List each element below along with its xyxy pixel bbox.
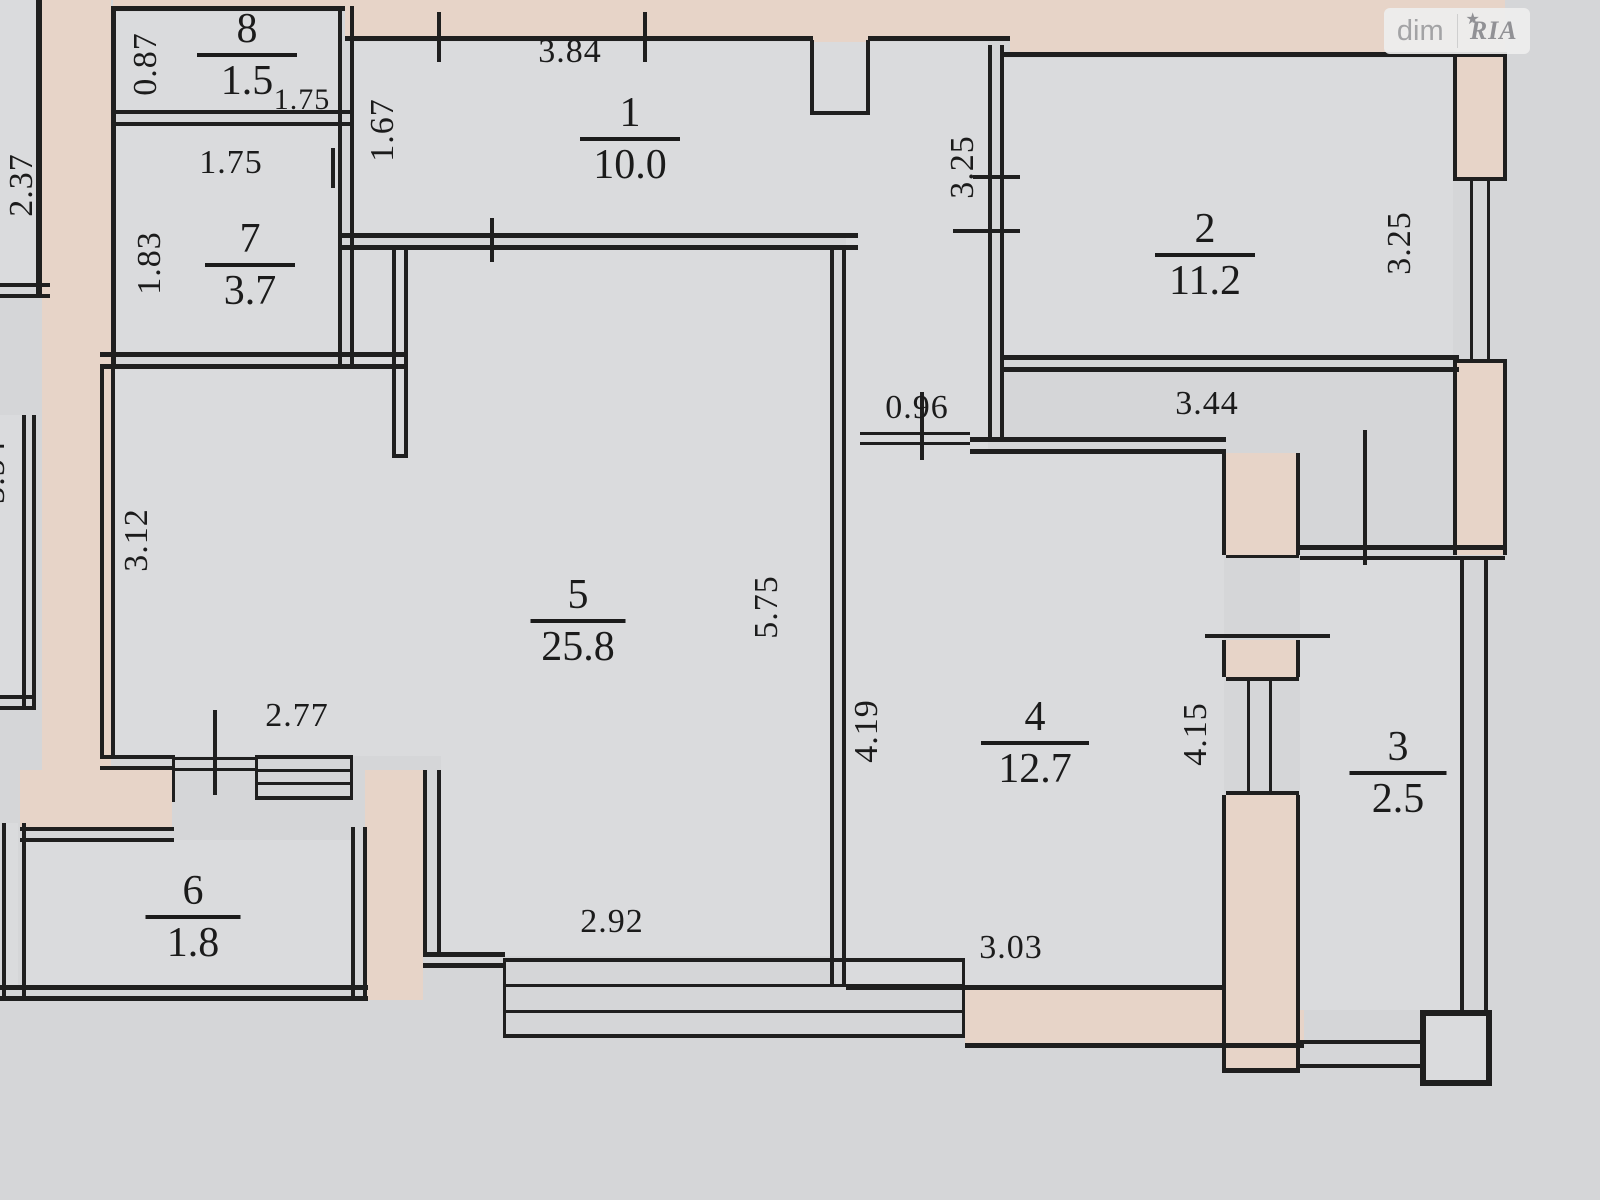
wall-line	[338, 245, 858, 250]
wall-line	[363, 827, 367, 1000]
wall-fill	[1226, 453, 1299, 555]
wall-line	[113, 122, 354, 126]
dimension-label: 4.19	[848, 699, 886, 763]
wall-line	[423, 963, 505, 968]
room-2-area: 11.2	[1155, 259, 1255, 303]
room-5-floor	[354, 249, 830, 368]
wall-line	[392, 454, 408, 458]
room-2-floor	[1004, 58, 1453, 355]
window-line	[1453, 359, 1507, 363]
wall-line	[111, 6, 116, 366]
dimension-label: 1.67	[364, 98, 402, 162]
wall-line	[22, 823, 26, 1000]
room-6-area: 1.8	[146, 921, 241, 965]
neighbor-unit-floor	[6, 823, 18, 987]
wall-line	[32, 415, 36, 708]
dimension-label: 3.44	[1175, 385, 1239, 423]
wall-line	[100, 364, 104, 759]
balcony-railing-line	[1300, 1040, 1422, 1044]
room-8-number: 8	[197, 8, 297, 50]
room-6-label: 6 1.8	[146, 870, 241, 965]
balcony-door-line	[172, 755, 175, 802]
floor-plan: 1 10.0 2 11.2 3 2.5 4 12.7 5 25.8 6 1.8 …	[0, 0, 1600, 1200]
room-5-label: 5 25.8	[531, 574, 626, 669]
dimension-label: 0.87	[127, 32, 165, 96]
wall-line	[100, 364, 408, 369]
wall-fill	[345, 0, 1010, 40]
door-threshold-line	[860, 432, 970, 435]
room-5-area: 25.8	[531, 625, 626, 669]
wall-line	[965, 1043, 1304, 1048]
room-3-area: 2.5	[1350, 777, 1447, 821]
dimension-label: 3.12	[118, 508, 156, 572]
dimension-label: 3.84	[538, 33, 602, 71]
wall-line	[423, 952, 505, 957]
room-1-area: 10.0	[580, 143, 680, 187]
wall-line	[1300, 545, 1505, 550]
room-1-label: 1 10.0	[580, 92, 680, 187]
dimension-tick	[213, 710, 217, 795]
wall-fill	[20, 770, 172, 827]
wall-fill	[1226, 640, 1299, 677]
watermark-dim: dim	[1384, 15, 1457, 48]
wall-line	[1000, 45, 1004, 439]
dimension-tick	[331, 148, 335, 188]
room-4-label: 4 12.7	[981, 696, 1089, 791]
window-line	[503, 1034, 965, 1038]
window-line	[350, 755, 353, 800]
wall-line	[36, 0, 42, 298]
watermark-ria: ★ RIA	[1458, 16, 1531, 46]
window-line	[1226, 791, 1299, 795]
room-6-underline	[146, 915, 241, 919]
room-2-number: 2	[1155, 208, 1255, 250]
dimension-label: 3.54	[0, 440, 13, 504]
dimension-tick	[953, 229, 1020, 233]
wall-line	[100, 352, 408, 357]
wall-line	[1222, 640, 1226, 677]
dimension-label: 5.75	[748, 575, 786, 639]
wall-line	[437, 770, 441, 956]
window-line	[1487, 180, 1490, 360]
wall-line	[1296, 795, 1300, 1068]
watermark-dim-text: dim	[1397, 15, 1444, 47]
room-2-underline	[1155, 253, 1255, 257]
wall-line	[392, 249, 396, 458]
window-line	[255, 755, 353, 759]
room-4-underline	[981, 741, 1089, 745]
wall-line	[970, 449, 1226, 454]
window-line	[255, 755, 258, 800]
room-1-number: 1	[580, 92, 680, 134]
dimension-label: 1.83	[131, 231, 169, 295]
wall-line	[338, 233, 858, 238]
wall-line	[1004, 367, 1459, 372]
balcony-railing-line	[1300, 1064, 1422, 1068]
wall-line	[830, 249, 834, 987]
wall-line	[842, 249, 846, 987]
window-line	[255, 769, 353, 772]
room-7-area: 3.7	[205, 269, 295, 313]
wall-line	[0, 996, 368, 1001]
room-3-number: 3	[1350, 726, 1447, 768]
window-line	[255, 796, 353, 800]
window-line	[1453, 177, 1507, 181]
room-2-label: 2 11.2	[1155, 208, 1255, 303]
wall-line	[0, 985, 368, 990]
wall-fill	[365, 770, 423, 1000]
dimension-label: 3.25	[1381, 211, 1419, 275]
room-7-underline	[205, 263, 295, 267]
entry-door-line	[866, 40, 870, 115]
window-line	[962, 958, 965, 1038]
dimension-label: 2.77	[265, 697, 329, 735]
window-line	[1269, 681, 1272, 791]
window-line	[1247, 681, 1250, 791]
wall-fill	[1457, 363, 1505, 555]
wall-line	[1222, 453, 1226, 555]
room-6-number: 6	[146, 870, 241, 912]
neighbor-unit-floor	[0, 0, 36, 285]
dimension-label: 1.75	[274, 83, 331, 117]
wall-line	[100, 755, 174, 759]
room-5-floor	[115, 368, 830, 756]
door-threshold-line	[860, 442, 970, 445]
star-icon: ★	[1466, 9, 1480, 29]
wall-line	[846, 985, 1225, 990]
balcony-railing-line	[1484, 558, 1488, 1010]
wall-line	[20, 827, 174, 831]
wall-line	[1300, 556, 1505, 560]
wall-line	[2, 823, 6, 1000]
dimension-tick	[1205, 634, 1330, 638]
window-line	[1226, 677, 1299, 681]
wall-line	[970, 437, 1226, 442]
window-line	[255, 782, 353, 785]
room-1-underline	[580, 137, 680, 141]
wall-line	[404, 249, 408, 458]
wall-fill	[965, 985, 1304, 1045]
wall-line	[1453, 56, 1457, 177]
wall-line	[0, 283, 50, 287]
window-line	[503, 1010, 965, 1013]
window-line	[1470, 180, 1473, 360]
wall-line	[20, 838, 174, 842]
room-4-area: 12.7	[981, 747, 1089, 791]
wall-line	[1222, 795, 1226, 1073]
wall-line	[1503, 363, 1507, 555]
dimension-tick	[1363, 430, 1367, 565]
dimension-tick	[643, 12, 647, 62]
window-line	[503, 958, 506, 1038]
balcony-railing-line	[1460, 558, 1464, 1010]
wall-line	[1296, 640, 1300, 677]
room-3-label: 3 2.5	[1350, 726, 1447, 821]
balcony-post	[1420, 1010, 1492, 1086]
wall-line	[350, 6, 354, 368]
room-4-number: 4	[981, 696, 1089, 738]
room-5-number: 5	[531, 574, 626, 616]
entry-door-line	[810, 40, 814, 115]
dimension-tick	[490, 218, 494, 262]
wall-line	[100, 766, 174, 770]
wall-line	[111, 364, 115, 759]
wall-line	[423, 770, 427, 956]
dimension-label: 4.15	[1177, 702, 1215, 766]
room-3-underline	[1350, 771, 1447, 775]
dimension-label: 2.92	[580, 903, 644, 941]
wall-line	[0, 706, 36, 710]
wall-line	[1004, 355, 1459, 360]
wall-line	[1222, 1068, 1300, 1073]
wall-fill	[1457, 56, 1505, 177]
wall-line	[1296, 453, 1300, 555]
window-line	[503, 958, 965, 962]
watermark-badge: dim ★ RIA	[1384, 8, 1530, 54]
wall-line	[351, 827, 355, 1000]
dimension-label: 3.25	[944, 135, 982, 199]
room-7-number: 7	[205, 218, 295, 260]
room-5-underline	[531, 619, 626, 623]
dimension-label: 0.96	[885, 389, 949, 427]
wall-line	[22, 415, 26, 708]
room-7-label: 7 3.7	[205, 218, 295, 313]
wall-line	[988, 45, 992, 439]
entry-door-line	[810, 111, 870, 115]
wall-line	[0, 695, 36, 699]
dimension-label: 3.03	[979, 929, 1043, 967]
dimension-tick	[437, 12, 441, 62]
room-8-underline	[197, 53, 297, 57]
wall-line	[1453, 363, 1457, 555]
dimension-label: 1.75	[199, 144, 263, 182]
wall-line	[0, 294, 50, 298]
wall-line	[1503, 52, 1507, 177]
balcony-door-line	[1226, 555, 1299, 558]
wall-line	[338, 6, 342, 368]
dimension-label: 2.37	[3, 153, 41, 217]
wall-line	[868, 36, 1010, 41]
